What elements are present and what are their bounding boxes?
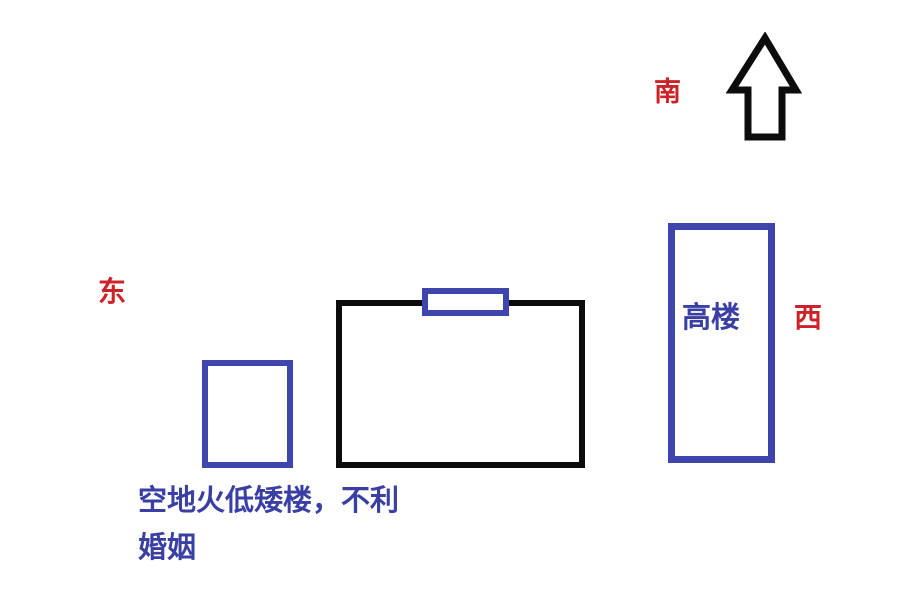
west-label: 西 [794,304,822,332]
low-building-rect [202,360,293,468]
caption: 空地火低矮楼，不利 婚姻 [138,478,399,572]
tall-building-label: 高楼 [682,304,740,333]
door-rect [422,288,509,316]
east-label: 东 [98,278,126,306]
caption-line2: 婚姻 [138,525,399,572]
fengshui-diagram: 南 东 西 高楼 空地火低矮楼，不利 婚姻 [0,0,921,610]
tall-building-rect: 高楼 [668,223,775,463]
main-house-rect [336,300,585,468]
up-arrow-icon [726,32,802,143]
caption-line1: 空地火低矮楼，不利 [138,478,399,525]
south-label: 南 [654,79,681,106]
